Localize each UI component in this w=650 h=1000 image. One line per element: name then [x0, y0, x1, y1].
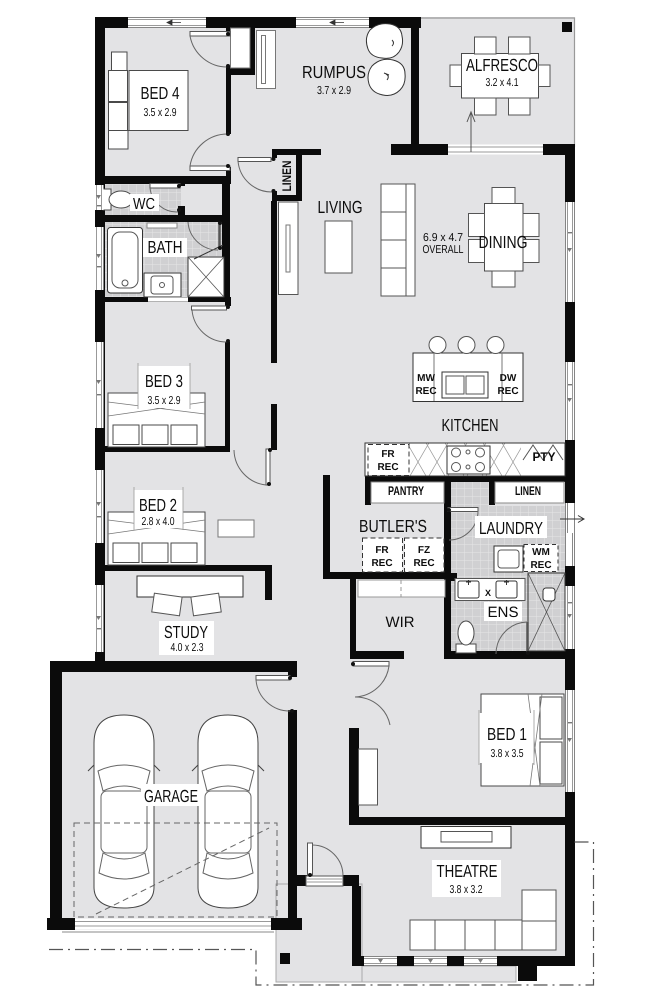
svg-text:REC: REC: [377, 462, 398, 473]
svg-text:BATH: BATH: [148, 237, 183, 257]
svg-text:2.8 x 4.0: 2.8 x 4.0: [142, 516, 175, 528]
svg-text:REC: REC: [497, 386, 518, 397]
svg-text:KITCHEN: KITCHEN: [442, 415, 499, 435]
svg-text:3.7 x 2.9: 3.7 x 2.9: [317, 85, 351, 97]
svg-text:THEATRE: THEATRE: [437, 861, 498, 881]
svg-text:REC: REC: [415, 386, 436, 397]
svg-text:OVERALL: OVERALL: [423, 244, 464, 256]
svg-text:ALFRESCO: ALFRESCO: [466, 55, 538, 75]
svg-text:6.9 x 4.7: 6.9 x 4.7: [423, 232, 463, 244]
svg-text:BED 3: BED 3: [145, 371, 183, 391]
svg-text:REC: REC: [371, 558, 392, 569]
svg-text:WIR: WIR: [386, 614, 415, 631]
svg-text:BED 2: BED 2: [139, 495, 177, 515]
svg-text:BUTLER'S: BUTLER'S: [359, 516, 427, 536]
svg-text:MW: MW: [417, 373, 435, 384]
svg-text:3.8 x 3.5: 3.8 x 3.5: [491, 748, 524, 760]
svg-text:PTY: PTY: [533, 450, 557, 464]
svg-text:ENS: ENS: [488, 604, 519, 621]
svg-text:BED 1: BED 1: [487, 724, 527, 744]
svg-text:RUMPUS: RUMPUS: [302, 62, 366, 82]
svg-text:REC: REC: [530, 560, 551, 571]
svg-text:4.0 x 2.3: 4.0 x 2.3: [171, 642, 204, 654]
svg-text:DINING: DINING: [479, 232, 528, 252]
svg-text:PANTRY: PANTRY: [388, 484, 424, 498]
svg-text:DW: DW: [500, 373, 517, 384]
svg-text:FR: FR: [381, 449, 395, 460]
svg-text:LIVING: LIVING: [318, 197, 363, 217]
svg-text:STUDY: STUDY: [164, 622, 208, 642]
svg-text:WC: WC: [133, 196, 155, 213]
svg-text:WM: WM: [532, 547, 550, 558]
svg-text:GARAGE: GARAGE: [144, 786, 198, 806]
svg-text:FZ: FZ: [418, 545, 430, 556]
svg-text:LAUNDRY: LAUNDRY: [479, 518, 543, 538]
svg-text:LINEN: LINEN: [280, 161, 294, 192]
svg-text:3.5 x 2.9: 3.5 x 2.9: [144, 107, 177, 119]
svg-text:REC: REC: [413, 558, 434, 569]
svg-text:BED 4: BED 4: [141, 83, 180, 103]
svg-text:3.5 x 2.9: 3.5 x 2.9: [148, 395, 181, 407]
svg-text:LINEN: LINEN: [515, 484, 541, 498]
svg-text:X: X: [485, 588, 491, 598]
svg-text:3.8 x 3.2: 3.8 x 3.2: [450, 884, 483, 896]
svg-text:3.2 x 4.1: 3.2 x 4.1: [486, 77, 519, 89]
svg-text:FR: FR: [375, 545, 389, 556]
